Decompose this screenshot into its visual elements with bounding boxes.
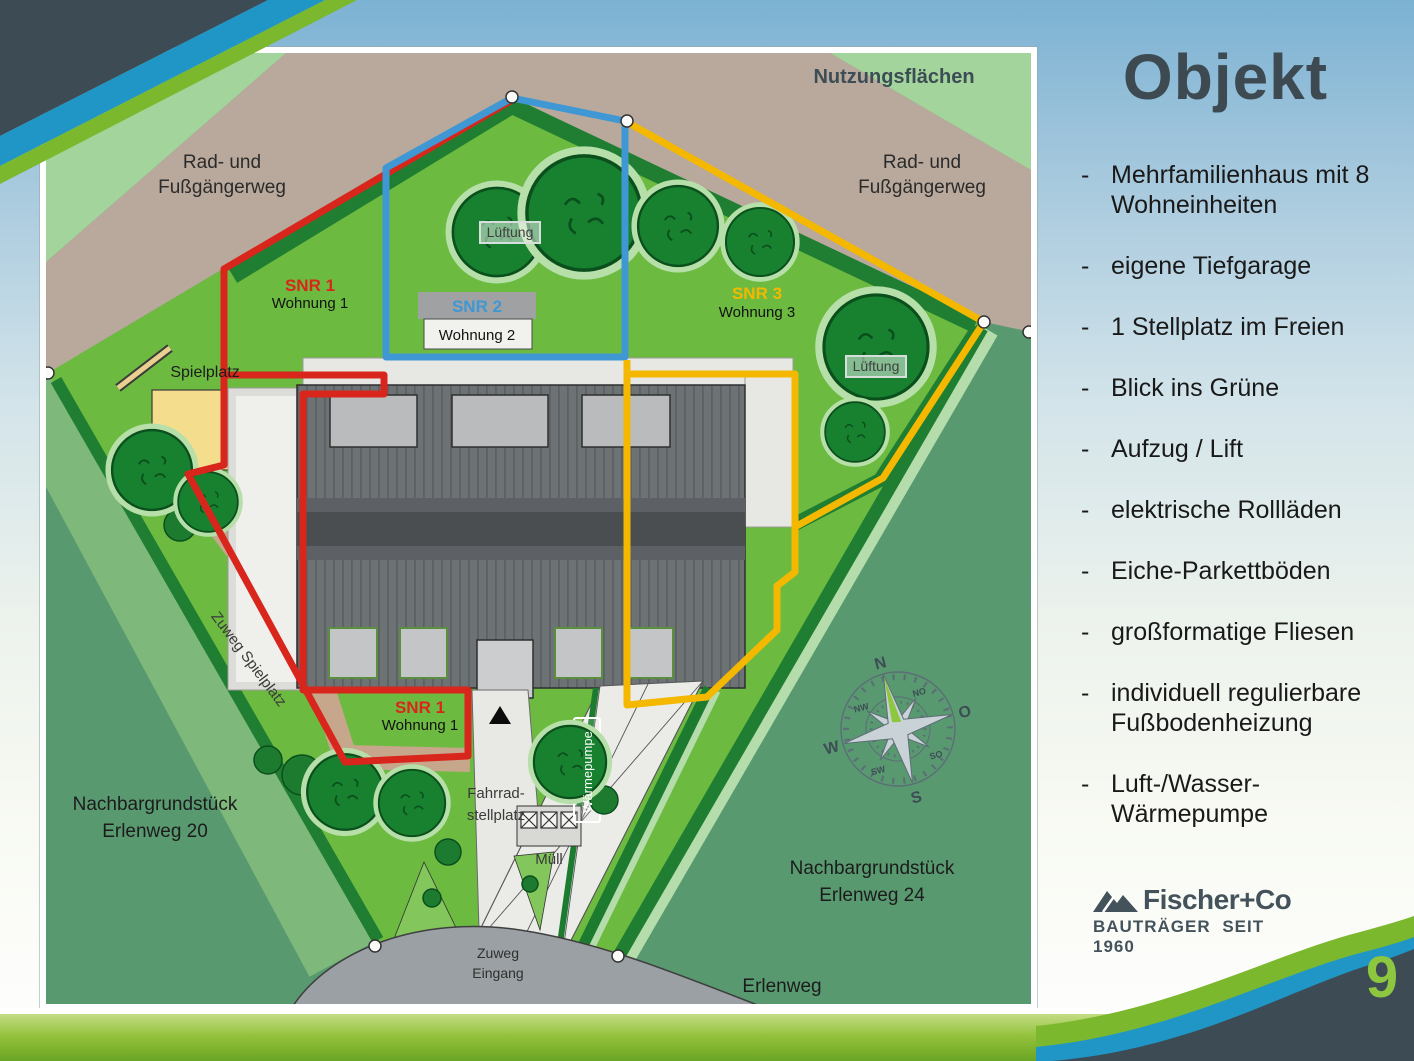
bullet-text: elektrische Rollläden [1111,495,1379,525]
snr1-sublabel: Wohnung 1 [272,295,348,312]
logo-tagline: BAUTRÄGER SEIT 1960 [1093,917,1313,957]
snr1-label: SNR 1 [285,276,335,295]
bullet-text: großformatige Fliesen [1111,617,1379,647]
neighbor24-label: Erlenweg 24 [819,885,925,906]
bullet-text: 1 Stellplatz im Freien [1111,312,1379,342]
bike-rack-label: Fahrrad- [467,785,525,802]
bullet-text: Mehrfamilienhaus mit 8 Wohneinheiten [1111,160,1379,220]
terrace-top-1 [330,395,417,447]
terrace-top-2 [452,395,548,447]
snr2-label: SNR 2 [452,297,502,316]
entrance-block [477,640,533,698]
bullet-text: Eiche-Parkettböden [1111,556,1379,586]
tree [822,399,887,464]
vent-label: Lüftung [853,358,900,374]
site-plan-panel: N O S W NO SO SW NW Nutzungsflächen Rad-… [40,47,1037,1010]
bullet-text: Aufzug / Lift [1111,434,1379,464]
snr3-sublabel: Wohnung 3 [719,304,795,321]
tree [634,182,721,269]
bullet-text: individuell regulierbare Fußbodenheizung [1111,678,1379,738]
logo-name: Fischer+Co [1143,884,1291,916]
entrance-path-label: Zuweg [477,945,519,961]
bullet-dash: - [1081,251,1111,281]
bush [254,746,282,774]
tree [376,767,449,840]
snr1-sublabel-bottom: Wohnung 1 [382,717,458,734]
bike-path-label-right: Fußgängerweg [858,177,986,198]
list-item: -individuell regulierbare Fußbodenheizun… [1081,678,1381,738]
bullet-list: -Mehrfamilienhaus mit 8 Wohneinheiten -e… [1081,160,1381,829]
list-item: -Mehrfamilienhaus mit 8 Wohneinheiten [1081,160,1381,220]
tree [175,469,240,534]
heat-pump-label: Wärmepumpe [580,731,595,813]
bike-path-label-left: Fußgängerweg [158,177,286,198]
tree [723,205,798,280]
page-title: Objekt [1037,40,1414,114]
snr1-label-bottom: SNR 1 [395,698,445,717]
bullet-text: eigene Tiefgarage [1111,251,1379,281]
list-item: -Blick ins Grüne [1081,373,1381,403]
waste-bins [521,812,577,828]
bullet-dash: - [1081,312,1111,342]
playground-label: Spielplatz [170,364,239,381]
bullet-dash: - [1081,678,1111,738]
bullet-dash: - [1081,495,1111,525]
plaza-right [745,374,793,527]
roof-ridge-band [297,512,745,546]
bullet-dash: - [1081,373,1111,403]
list-item: -Aufzug / Lift [1081,434,1381,464]
terrace-bottom-3 [555,628,602,678]
vent-label: Lüftung [487,224,534,240]
bike-rack-label: stellplatz [467,807,525,824]
entrance-path-label: Eingang [472,965,523,981]
company-logo: Fischer+Co BAUTRÄGER SEIT 1960 [1093,884,1313,957]
bush [435,839,461,865]
bullet-dash: - [1081,160,1111,220]
page-number: 9 [1356,944,1408,1011]
site-plan-svg: N O S W NO SO SW NW Nutzungsflächen Rad-… [46,53,1031,1004]
tree [530,722,609,801]
list-item: -elektrische Rollläden [1081,495,1381,525]
list-item: -1 Stellplatz im Freien [1081,312,1381,342]
bullet-dash: - [1081,769,1111,829]
street-label: Erlenweg [742,976,821,997]
tree [819,290,933,404]
terrace-bottom-4 [627,628,673,678]
mountain-icon [1093,886,1139,914]
snr3-label: SNR 3 [732,284,782,303]
list-item: -eigene Tiefgarage [1081,251,1381,281]
wedge-bush-1 [423,889,441,907]
bike-path-label-right: Rad- und [883,152,961,173]
neighbor24-label: Nachbargrundstück [790,858,955,879]
terrace-bottom-1 [329,628,377,678]
slide: N O S W NO SO SW NW Nutzungsflächen Rad-… [0,0,1414,1061]
wedge-bush-2 [522,876,538,892]
waste-label: Müll [535,851,563,868]
list-item: -Luft-/Wasser- Wärmepumpe [1081,769,1381,829]
bullet-dash: - [1081,556,1111,586]
bullet-text: Blick ins Grüne [1111,373,1379,403]
bullet-dash: - [1081,434,1111,464]
bullet-dash: - [1081,617,1111,647]
neighbor20-label: Erlenweg 20 [102,821,208,842]
neighbor20-label: Nachbargrundstück [73,794,238,815]
snr2-sublabel: Wohnung 2 [439,327,515,344]
terrace-bottom-2 [400,628,447,678]
bike-path-label-left: Rad- und [183,152,261,173]
list-item: -großformatige Fliesen [1081,617,1381,647]
bullet-text: Luft-/Wasser- Wärmepumpe [1111,769,1379,829]
list-item: -Eiche-Parkettböden [1081,556,1381,586]
map-title: Nutzungsflächen [813,66,974,88]
